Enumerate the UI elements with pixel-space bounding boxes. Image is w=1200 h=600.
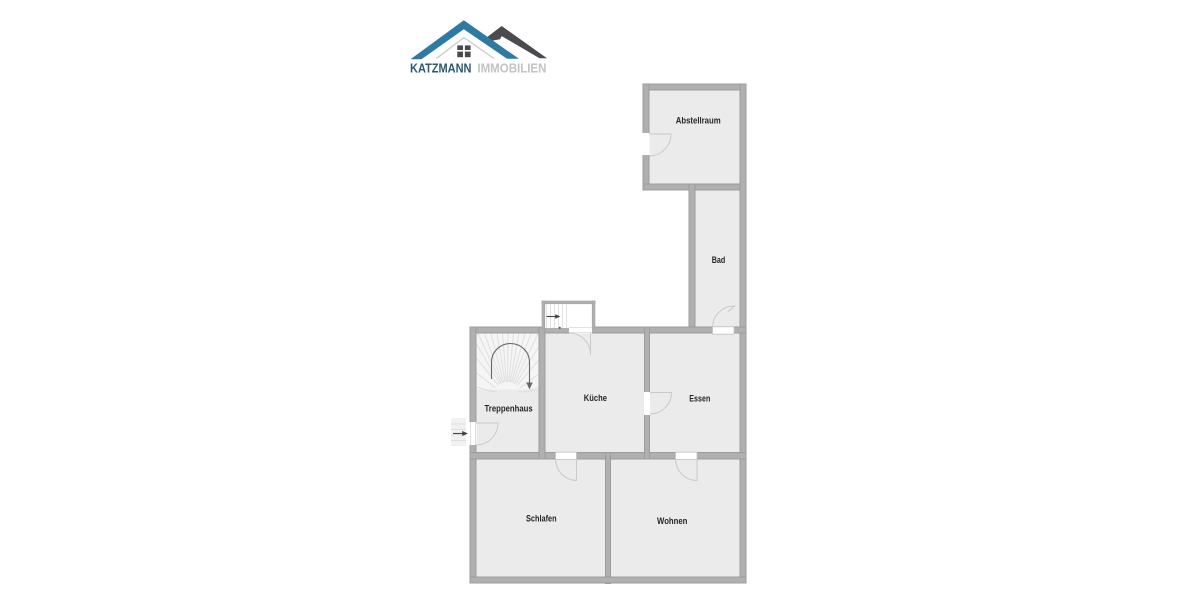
svg-text:Essen: Essen xyxy=(689,393,710,404)
svg-text:Treppenhaus: Treppenhaus xyxy=(485,403,533,414)
svg-text:Schlafen: Schlafen xyxy=(526,513,557,524)
svg-text:KATZMANN: KATZMANN xyxy=(410,61,472,75)
svg-text:IMMOBILIEN: IMMOBILIEN xyxy=(477,61,546,75)
svg-text:Abstellraum: Abstellraum xyxy=(676,116,721,127)
svg-text:Wohnen: Wohnen xyxy=(657,516,687,527)
svg-text:Bad: Bad xyxy=(712,255,726,266)
svg-text:Küche: Küche xyxy=(584,393,607,404)
